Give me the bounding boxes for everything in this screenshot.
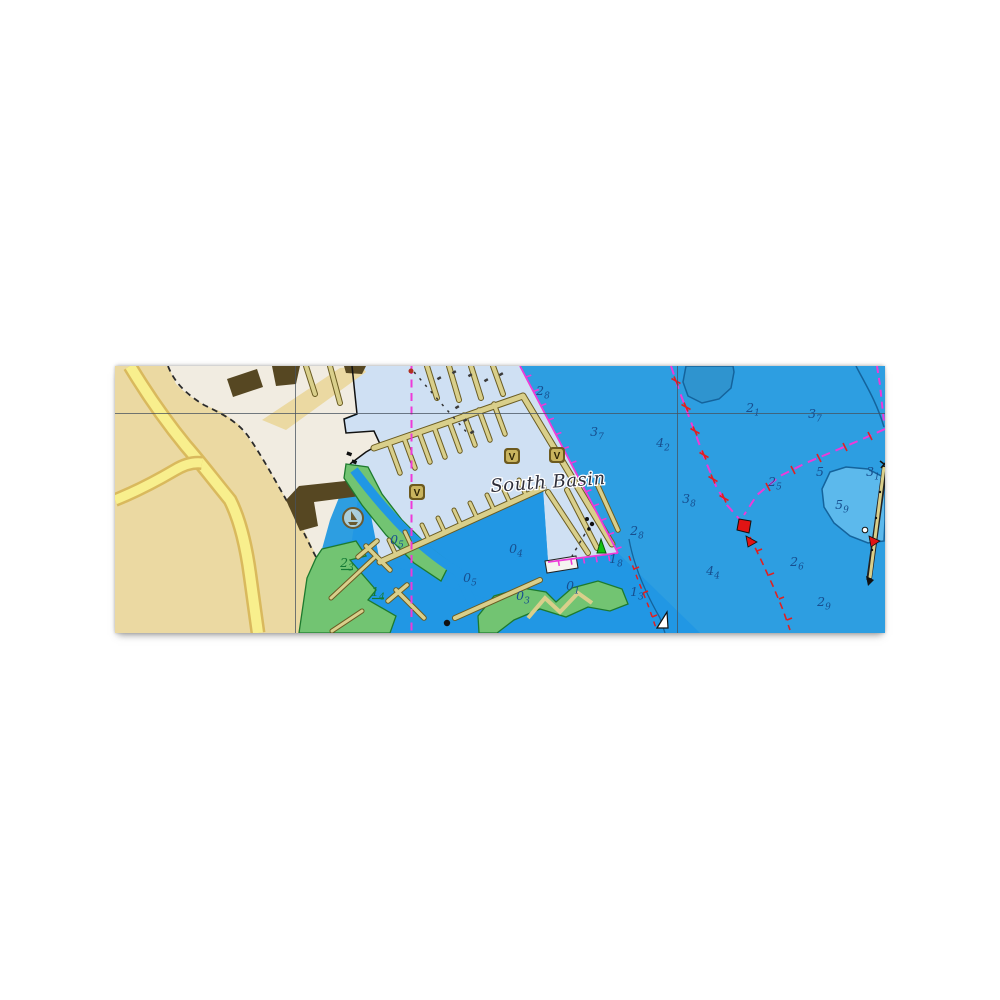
visitor-berth-symbol: V xyxy=(504,448,520,464)
svg-text:V: V xyxy=(509,452,516,463)
yacht-club-symbol xyxy=(343,508,363,528)
svg-text:V: V xyxy=(554,451,561,462)
visitor-berth-symbol: V xyxy=(549,447,565,463)
depth-sounding: 5 xyxy=(816,464,824,479)
visitor-berth-symbol: V xyxy=(409,484,425,500)
screenshot-canvas: VVV 283721374238255315928184426291304050… xyxy=(0,0,1000,1000)
track-mark xyxy=(409,369,414,374)
black-dot-symbol xyxy=(444,620,450,626)
svg-text:V: V xyxy=(414,488,421,499)
nautical-chart-canvas[interactable]: VVV 283721374238255315928184426291304050… xyxy=(115,366,885,633)
